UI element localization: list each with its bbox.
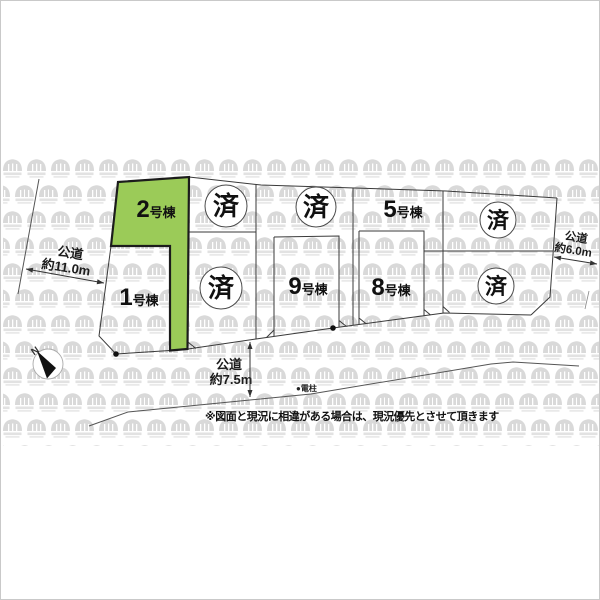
utility-pole-dot — [330, 325, 336, 331]
site-plan-svg: 済 済 済 済 済 2号棟 1号棟 5号棟 9号棟 8号棟 公道 約11.0m … — [1, 1, 600, 600]
sold-stamp-3: 済 — [296, 187, 336, 227]
svg-text:約7.5m: 約7.5m — [210, 372, 253, 387]
sold-label: 済 — [485, 274, 508, 299]
sold-stamp-5: 済 — [478, 268, 514, 304]
disclaimer-text: ※図面と現況に相違がある場合は、現況優先とさせて頂きます — [205, 409, 499, 423]
utility-pole-label: ●電柱 — [296, 383, 317, 393]
boundary-point-dot — [113, 351, 119, 357]
sold-label: 済 — [487, 208, 510, 233]
sold-stamp-4: 済 — [480, 202, 516, 238]
sold-label: 済 — [303, 192, 330, 222]
plot-map-image: 済 済 済 済 済 2号棟 1号棟 5号棟 9号棟 8号棟 公道 約11.0m … — [0, 0, 600, 600]
sold-stamp-1: 済 — [205, 185, 247, 227]
svg-text:公道: 公道 — [216, 357, 242, 372]
sold-label: 済 — [213, 191, 240, 221]
sold-label: 済 — [208, 273, 235, 303]
sold-stamp-2: 済 — [200, 267, 242, 309]
